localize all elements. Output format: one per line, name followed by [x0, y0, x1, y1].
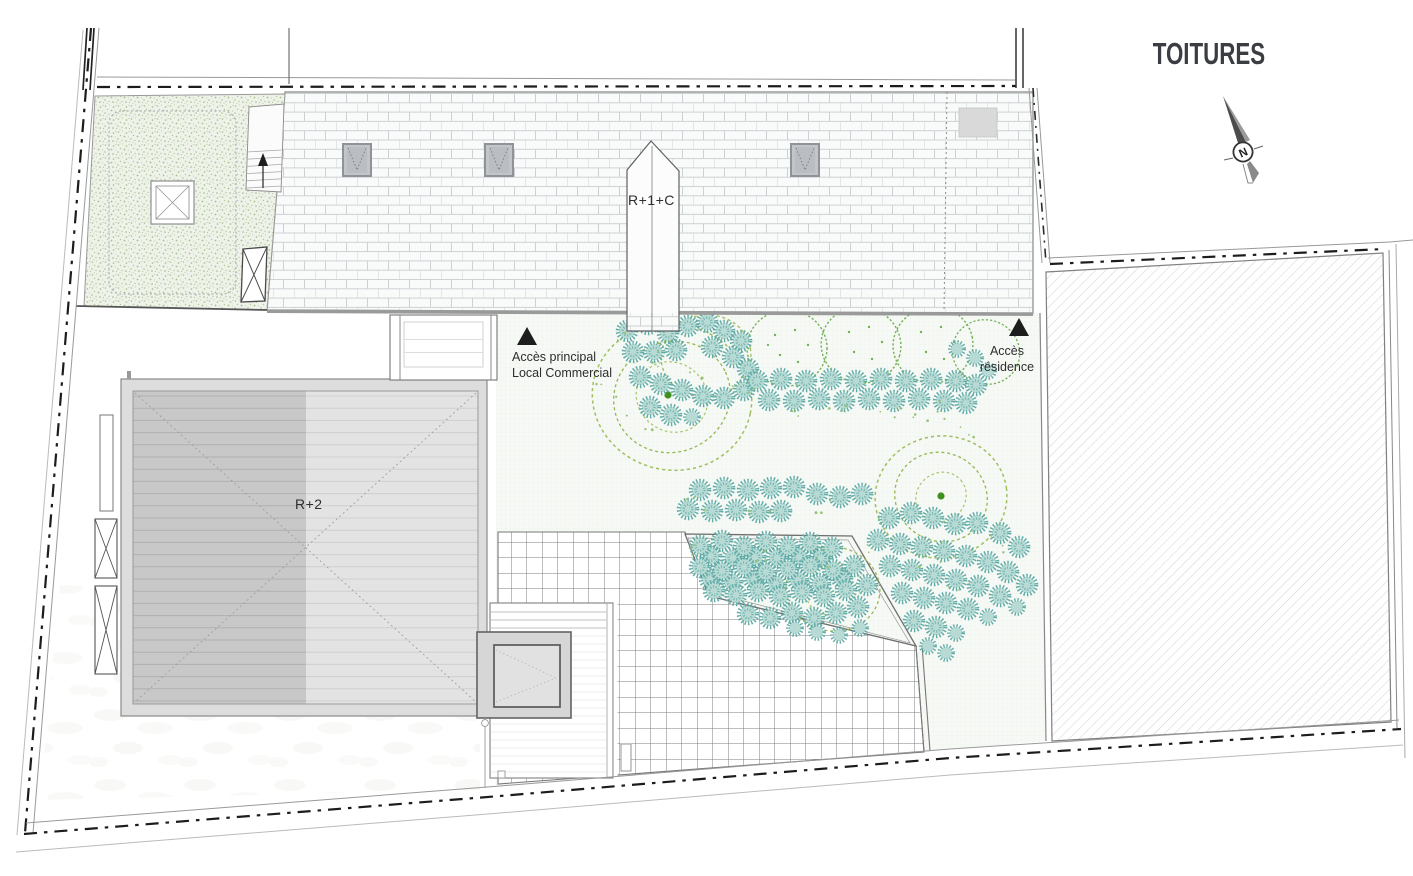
svg-text:résidence: résidence: [980, 360, 1034, 374]
svg-text:R+1+C: R+1+C: [628, 192, 675, 208]
svg-text:Local Commercial: Local Commercial: [512, 366, 612, 380]
svg-text:R+2: R+2: [295, 496, 323, 512]
svg-text:TOITURES: TOITURES: [1153, 36, 1265, 70]
svg-text:Accès principal: Accès principal: [512, 350, 596, 364]
svg-text:Accès: Accès: [990, 344, 1024, 358]
